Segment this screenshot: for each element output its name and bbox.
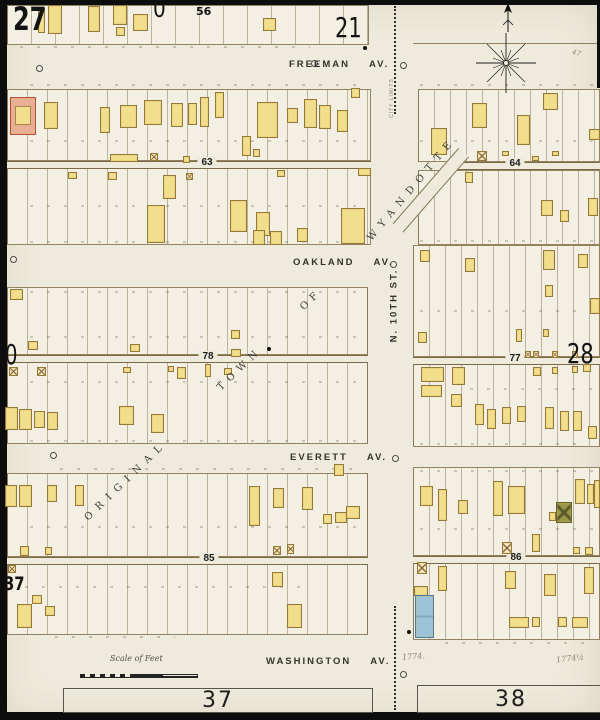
lot-number-row [30, 381, 360, 383]
building [573, 411, 582, 431]
building [502, 151, 509, 156]
building [272, 572, 283, 587]
pencil-note-right: 1774½ [556, 653, 585, 665]
building [273, 488, 284, 508]
street-suffix: AV. [370, 656, 390, 667]
building [549, 512, 556, 521]
building [205, 364, 211, 377]
bottom-sheet-number-left: 37 [202, 688, 234, 713]
building [420, 250, 430, 262]
street-name: N. 10TH ST. [389, 269, 400, 343]
building [420, 486, 433, 506]
building [287, 604, 302, 628]
building [587, 484, 594, 504]
building [590, 298, 600, 314]
building [334, 464, 344, 476]
bottom-sheet-box-left: 37 [63, 688, 373, 713]
adjacent-sheet-top: 21 [335, 14, 362, 42]
compass-rose-icon [474, 31, 538, 95]
building [17, 604, 32, 628]
brick-building [10, 97, 36, 135]
building [358, 168, 371, 176]
street-label-everett: EVERETT AV. [290, 452, 387, 463]
building [560, 411, 569, 431]
building [302, 487, 313, 510]
adjacent-sheet-right: 28 [567, 340, 594, 368]
edge-zero-top: 0 [153, 0, 166, 21]
outbuilding-x [150, 153, 158, 161]
street-name: EVERETT [290, 452, 348, 463]
outbuilding-x [552, 351, 558, 358]
block-number: 63 [197, 157, 216, 168]
building [509, 617, 529, 628]
building [458, 500, 468, 514]
lot-number-row [420, 310, 595, 312]
lot-number-row [420, 528, 595, 530]
building [47, 412, 58, 430]
building [451, 394, 462, 407]
building [346, 506, 360, 519]
pencil-note-left: 1774. [402, 651, 425, 662]
building [588, 426, 597, 439]
block-alley: 78 [7, 355, 368, 363]
street-label-freeman: FREEMAN AV. [289, 59, 389, 70]
hydrant-dot [407, 630, 411, 634]
block-number: 78 [198, 351, 217, 362]
building [341, 208, 365, 244]
building [123, 367, 131, 373]
page-border [0, 712, 600, 720]
outbuilding-x [477, 151, 487, 161]
lot-number-row [420, 443, 590, 445]
lot-number-row [420, 470, 595, 472]
building [560, 210, 569, 222]
survey-marker-circle [392, 455, 399, 462]
building [304, 99, 317, 128]
lot-number-row [470, 388, 595, 390]
building [5, 407, 18, 430]
block-number: 64 [505, 158, 524, 169]
lot-number-row [55, 636, 175, 638]
building [558, 617, 567, 627]
city-block [7, 362, 368, 444]
building [572, 617, 588, 628]
block-alley: 86 [413, 556, 600, 564]
street-suffix: AV. [367, 452, 387, 463]
north-arrow-icon [500, 3, 516, 33]
building [34, 411, 45, 428]
building [508, 486, 525, 514]
city-limits-label: CITY LIMITS [389, 69, 395, 127]
outbuilding-x [186, 173, 193, 180]
lot-number-row [60, 468, 360, 470]
building [465, 172, 473, 183]
survey-marker-circle [36, 65, 43, 72]
building [177, 367, 186, 379]
building [421, 385, 442, 397]
lot-number-row [30, 440, 360, 442]
building [421, 367, 444, 382]
building [543, 250, 555, 270]
block-alley: 85 [7, 557, 368, 565]
building [133, 14, 148, 31]
building [20, 546, 29, 556]
block-number: 85 [199, 553, 218, 564]
city-limits-line [394, 606, 396, 710]
building [472, 103, 487, 128]
edge-zero-left: 0 [5, 341, 17, 369]
outbuilding-x [37, 367, 46, 376]
building [183, 156, 190, 163]
building [588, 198, 598, 216]
lot-number-row [30, 241, 360, 243]
building [19, 485, 32, 507]
building [5, 485, 17, 507]
building [532, 156, 539, 161]
outbuilding-x [8, 565, 16, 573]
building [337, 110, 348, 132]
outbuilding-x [525, 351, 531, 358]
building [230, 200, 247, 232]
building [188, 103, 197, 125]
green-building [556, 502, 572, 523]
building [108, 172, 117, 180]
adjacent-sheet-left-lower: 37 [4, 575, 25, 594]
building [257, 102, 278, 138]
building [573, 547, 580, 554]
building [144, 100, 162, 125]
building [516, 329, 522, 342]
building [113, 5, 127, 25]
building [110, 154, 138, 162]
building [502, 407, 511, 424]
lot-number-row [420, 240, 595, 242]
bottom-sheet-number-right: 38 [495, 687, 527, 712]
building [45, 606, 55, 616]
building [532, 617, 540, 627]
building [270, 231, 282, 245]
building [578, 254, 588, 268]
outbuilding-x [417, 562, 427, 574]
building [231, 349, 241, 357]
building [533, 367, 541, 376]
building [10, 289, 23, 300]
building [452, 367, 465, 385]
building [575, 479, 585, 504]
street-label-oakland: OAKLAND AV. [293, 257, 394, 268]
building [438, 566, 447, 591]
outbuilding-x [502, 542, 512, 554]
outbuilding-x [273, 546, 281, 555]
lot-number-row [30, 140, 360, 142]
building [151, 414, 164, 433]
building [552, 151, 559, 156]
survey-marker-circle [400, 671, 407, 678]
block-number: 77 [505, 353, 524, 364]
building [242, 136, 251, 156]
building [44, 102, 58, 129]
city-block [7, 473, 368, 557]
building [120, 105, 137, 128]
building [297, 228, 308, 242]
sheet-number: 27 [13, 3, 46, 35]
building [147, 205, 165, 243]
building [543, 93, 558, 110]
building [168, 366, 174, 372]
street-suffix: AV. [369, 59, 389, 70]
building [88, 6, 100, 32]
building [584, 567, 594, 594]
lot-number-row [30, 336, 360, 338]
scale-label: Scale of Feet [110, 654, 163, 663]
building [505, 571, 516, 589]
building [475, 404, 484, 425]
outbuilding-x [533, 351, 539, 358]
street-name: OAKLAND [293, 257, 355, 268]
building [119, 406, 134, 425]
street-label-washington: WASHINGTON AV. [266, 656, 391, 667]
lot-number-row [445, 642, 595, 644]
building [231, 330, 240, 339]
building [287, 108, 298, 123]
building [594, 480, 600, 508]
street-name: WASHINGTON [266, 656, 351, 667]
survey-marker-circle [10, 256, 17, 263]
building [517, 406, 526, 422]
building [532, 534, 540, 552]
building [544, 574, 556, 596]
building [68, 172, 77, 179]
building [19, 409, 32, 430]
survey-marker-circle [50, 452, 57, 459]
building [163, 175, 176, 199]
street-label-n10th: N. 10TH ST. [389, 265, 400, 347]
building [545, 407, 554, 429]
building [277, 170, 285, 177]
building [75, 485, 84, 506]
building [465, 258, 475, 272]
building [116, 27, 125, 36]
building [541, 200, 553, 216]
hydrant-dot [363, 46, 367, 50]
building [200, 97, 209, 127]
pencil-note-compass: 47 [571, 48, 582, 58]
building [47, 485, 57, 502]
street-name: FREEMAN [289, 59, 350, 70]
sanborn-map-sheet: 636478778586 27 0 56 21 28 0 37 37 38 FR… [0, 0, 600, 720]
building [323, 514, 332, 524]
building [319, 105, 331, 129]
building [493, 481, 503, 516]
building [253, 149, 260, 157]
building [517, 115, 530, 145]
scale-bar-baseline [80, 677, 198, 678]
building [130, 344, 140, 352]
city-block [7, 564, 368, 635]
building [418, 332, 427, 343]
building [32, 595, 42, 604]
building [215, 92, 224, 118]
stone-building [415, 595, 434, 638]
block-alley: 64 [455, 162, 600, 170]
building [253, 230, 265, 245]
bottom-sheet-box-right: 38 [417, 685, 600, 713]
building [552, 367, 558, 374]
building [28, 341, 38, 350]
building [487, 409, 496, 429]
building [48, 5, 62, 34]
lot-number-row [30, 84, 360, 86]
lot-number-row [20, 46, 310, 48]
building [438, 489, 447, 521]
lot-number-row [30, 205, 360, 207]
survey-marker-circle [400, 62, 407, 69]
building [585, 547, 593, 555]
building [171, 103, 183, 127]
building [545, 285, 553, 297]
building [100, 107, 110, 133]
building [45, 547, 52, 555]
hydrant-dot [267, 347, 271, 351]
lot-number-row [30, 526, 360, 528]
outbuilding-x [287, 544, 294, 554]
block-number-56: 56 [196, 6, 211, 17]
building [351, 88, 360, 98]
building [543, 329, 549, 337]
building [589, 129, 600, 140]
lot-number-row [25, 586, 305, 588]
building [249, 486, 260, 526]
building [263, 18, 276, 31]
